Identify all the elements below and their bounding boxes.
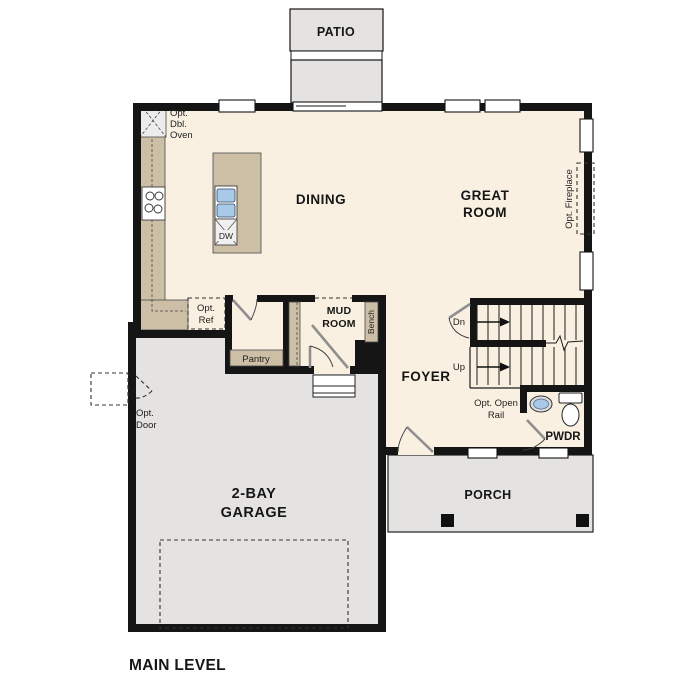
opt-door-stoop	[91, 373, 128, 405]
great-room-label-line1: GREAT	[461, 188, 510, 203]
opt-dbl-oven-label-line3: Oven	[170, 130, 193, 141]
stairs-up-label: Up	[453, 362, 465, 373]
wall-stairs-top	[470, 298, 592, 305]
toilet-bowl	[562, 404, 579, 426]
porch-label: PORCH	[464, 488, 511, 502]
stairs-down-label: Dn	[453, 317, 465, 328]
wall-kitchen-left	[133, 103, 141, 338]
opt-open-rail-label-line1: Opt. Open	[474, 398, 518, 409]
window	[468, 448, 497, 458]
window	[580, 119, 593, 152]
wall-pantry-right	[283, 295, 289, 366]
mudroom-lockers	[289, 302, 300, 366]
mudroom-wall-mass	[355, 340, 378, 366]
wall-kitchen-bottom	[133, 330, 232, 338]
pantry-label: Pantry	[242, 354, 270, 365]
mud-room-label-line2: ROOM	[322, 318, 356, 330]
opt-fireplace-label: Opt. Fireplace	[564, 169, 575, 229]
window	[445, 100, 480, 112]
window	[485, 100, 520, 112]
dishwasher-label: DW	[219, 231, 233, 241]
opt-door-label-line2: Door	[136, 420, 157, 431]
patio-step	[291, 51, 382, 60]
mud-room-label-line1: MUD	[327, 305, 352, 317]
garage-entry-opening	[314, 366, 350, 374]
great-room-label-line2: ROOM	[463, 205, 507, 220]
opt-dbl-oven-label-line1: Opt.	[170, 108, 188, 119]
wall-pwdr-top	[520, 385, 592, 392]
wall-service-top-b	[257, 295, 315, 302]
pwdr-sink-basin	[534, 399, 549, 409]
wall-pwdr-left	[520, 385, 527, 413]
dining-label: DINING	[296, 192, 346, 207]
foyer-label: FOYER	[401, 369, 450, 384]
garage-label-line1: 2-BAY	[232, 486, 277, 502]
wall-service-top-c	[352, 295, 386, 302]
wall-stairs-left	[470, 298, 477, 347]
floor-plan-canvas: PATIO DINING GREAT ROOM Opt. Dbl. Oven D…	[0, 0, 687, 687]
opt-open-rail-label-line2: Rail	[488, 410, 504, 421]
porch-post	[441, 514, 454, 527]
wall-service-bottom	[225, 366, 386, 374]
opt-ref-label-line2: Ref	[199, 315, 214, 326]
pwdr-label: PWDR	[545, 431, 581, 443]
opt-dbl-oven-label-line2: Dbl.	[170, 119, 187, 130]
window	[539, 448, 568, 458]
wall-garage-left	[128, 322, 136, 632]
porch-post	[576, 514, 589, 527]
sink-basin	[217, 189, 235, 202]
opt-ref-label-line1: Opt.	[197, 303, 215, 314]
main-level-title: MAIN LEVEL	[129, 657, 226, 674]
window	[580, 252, 593, 290]
garage-label-line2: GARAGE	[221, 505, 288, 521]
kitchen-counter-bottom	[140, 300, 188, 330]
cooktop	[142, 187, 165, 220]
window	[219, 100, 255, 112]
patio-label: PATIO	[317, 25, 355, 39]
patio-landing	[291, 60, 382, 103]
wall-service-top-a	[225, 295, 233, 302]
floor-plan: PATIO DINING GREAT ROOM Opt. Dbl. Oven D…	[0, 0, 687, 687]
bench-label: Bench	[366, 310, 376, 334]
wall-garage-right	[378, 298, 386, 632]
opt-door-label-line1: Opt.	[136, 408, 154, 419]
wall-stairs-mid	[470, 340, 546, 347]
sink-basin	[217, 204, 235, 217]
toilet-tank	[559, 393, 582, 403]
